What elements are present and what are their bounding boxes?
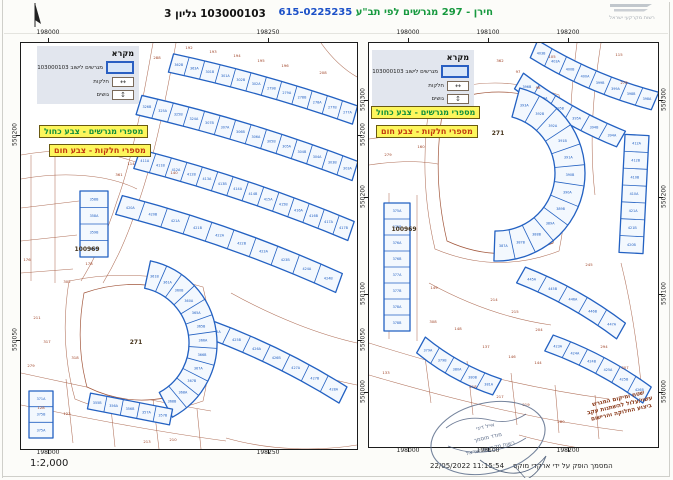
legend-note-parcels-brown: מספרי חלקות - צבע חום [376, 125, 478, 138]
svg-text:133: 133 [382, 370, 390, 375]
svg-text:390A: 390A [563, 191, 572, 195]
svg-text:391A: 391A [564, 156, 573, 160]
svg-text:392B: 392B [535, 112, 544, 116]
svg-text:413B: 413B [218, 182, 227, 186]
svg-text:416B: 416B [309, 214, 318, 218]
svg-text:403A: 403A [551, 60, 560, 64]
svg-text:421B: 421B [193, 226, 202, 230]
svg-text:305A: 305A [282, 145, 291, 149]
svg-text:303A: 303A [343, 166, 352, 170]
svg-text:306B: 306B [236, 130, 245, 134]
svg-text:421B: 421B [628, 226, 637, 230]
svg-text:389B: 389B [556, 207, 565, 211]
tick-mark [358, 340, 362, 341]
svg-text:376A: 376A [393, 241, 402, 245]
tick-mark [659, 100, 663, 101]
svg-text:302B: 302B [236, 78, 245, 82]
svg-text:375A: 375A [393, 209, 402, 213]
legend-box: מקרא מגרשים לישוב 103000103 ↔ חלקות ↕ גו… [372, 50, 474, 108]
tick-mark [16, 340, 20, 341]
svg-text:365B: 365B [197, 324, 206, 328]
svg-text:304B: 304B [297, 150, 306, 154]
svg-text:398B: 398B [627, 92, 636, 96]
svg-text:414A: 414A [233, 187, 242, 191]
svg-text:301B: 301B [205, 70, 214, 74]
svg-text:377B: 377B [393, 289, 402, 293]
svg-text:355B: 355B [93, 401, 102, 405]
sheet-label: 103000103 גליון 3 [160, 8, 270, 20]
legend-title: מקרא [377, 53, 469, 62]
svg-text:424A: 424A [302, 267, 311, 271]
svg-text:361A: 361A [163, 280, 172, 284]
tick-mark [568, 38, 569, 42]
svg-text:115: 115 [615, 52, 623, 57]
tick-mark [364, 197, 368, 198]
svg-text:176: 176 [23, 257, 31, 262]
legend-item-parcels: ↔ חלקות [42, 77, 134, 87]
svg-text:366A: 366A [199, 339, 208, 343]
svg-text:357B: 357B [158, 414, 167, 418]
svg-text:393A: 393A [520, 103, 529, 107]
svg-text:306A: 306A [251, 135, 260, 139]
svg-text:367B: 367B [187, 379, 196, 383]
surveyor-stamp: אייל דיני מודד מוסמך רשות מקרקעי ישראל [418, 352, 578, 478]
svg-text:362: 362 [496, 58, 504, 63]
svg-text:378B: 378B [393, 321, 402, 325]
svg-text:399B: 399B [596, 81, 605, 85]
svg-text:403B: 403B [537, 52, 546, 56]
svg-text:279B: 279B [267, 86, 276, 90]
stamp-line: מודד מוסמך [473, 432, 502, 444]
svg-text:413A: 413A [203, 177, 212, 181]
svg-text:388B: 388B [532, 233, 541, 237]
svg-text:422A: 422A [215, 234, 224, 238]
svg-text:411B: 411B [156, 163, 165, 167]
svg-text:128: 128 [37, 405, 45, 410]
svg-text:307A: 307A [221, 125, 230, 129]
svg-text:426B: 426B [272, 356, 281, 360]
svg-text:400B: 400B [566, 67, 575, 71]
svg-text:417B: 417B [339, 226, 348, 230]
svg-text:100969: 100969 [391, 226, 416, 233]
parcel-symbol: ↔ [447, 81, 469, 91]
svg-text:399A: 399A [611, 87, 620, 91]
svg-text:305B: 305B [267, 140, 276, 144]
authority-logo: רשות מקרקעי ישראל [600, 1, 664, 27]
svg-text:387B: 387B [516, 240, 525, 244]
tick-mark [48, 38, 49, 42]
svg-text:412B: 412B [631, 158, 640, 162]
svg-text:193: 193 [209, 49, 217, 54]
svg-text:318: 318 [71, 355, 79, 360]
legend-note-lots-blue: מספרי מגרשים - צבע כחול [39, 125, 148, 138]
legend-item-blocks: ↕ גושים [377, 94, 469, 104]
legend-note-lots-blue: מספרי מגרשים - צבע כחול [371, 106, 480, 119]
svg-text:358A: 358A [90, 214, 99, 218]
svg-text:446B: 446B [588, 309, 597, 313]
svg-text:97: 97 [516, 69, 521, 74]
svg-text:302: 302 [63, 279, 71, 284]
svg-text:326B: 326B [142, 105, 151, 109]
svg-text:447A: 447A [607, 322, 616, 326]
svg-text:325A: 325A [158, 109, 167, 113]
svg-text:271: 271 [492, 130, 505, 137]
scale-label: 1:2,000 [30, 458, 68, 469]
tick-mark [408, 448, 409, 452]
parcel-symbol: ↔ [112, 77, 134, 87]
svg-text:214: 214 [490, 297, 498, 302]
svg-text:426A: 426A [252, 347, 261, 351]
svg-text:360A: 360A [184, 299, 193, 303]
svg-text:417A: 417A [324, 220, 333, 224]
svg-text:194: 194 [233, 53, 241, 58]
svg-text:288: 288 [153, 55, 161, 60]
svg-text:324A: 324A [189, 117, 198, 121]
svg-text:279: 279 [27, 363, 35, 368]
svg-text:277A: 277A [343, 111, 352, 115]
tick-mark [488, 38, 489, 42]
legend-item-lots: מגרשים לישוב 103000103 [42, 61, 134, 74]
svg-text:423B: 423B [281, 258, 290, 262]
svg-text:208: 208 [319, 70, 327, 75]
svg-text:362B: 362B [174, 63, 183, 67]
lot-symbol [441, 65, 469, 78]
legend-item-lots: מגרשים לישוב 103000103 [377, 65, 469, 78]
svg-text:123: 123 [63, 411, 71, 416]
stamp-line: אייל דיני [476, 421, 496, 432]
svg-text:375A: 375A [37, 428, 46, 432]
svg-text:213: 213 [143, 439, 151, 444]
svg-text:325B: 325B [174, 113, 183, 117]
svg-text:317: 317 [43, 339, 51, 344]
page-edge [2, 0, 3, 478]
svg-text:195: 195 [257, 58, 265, 63]
svg-text:427A: 427A [291, 366, 300, 370]
svg-text:100969: 100969 [74, 246, 99, 253]
svg-text:149: 149 [430, 285, 438, 290]
svg-text:392A: 392A [548, 124, 557, 128]
svg-text:410A: 410A [630, 192, 639, 196]
svg-text:371A: 371A [37, 397, 46, 401]
svg-text:278: 278 [620, 80, 628, 85]
map-sheet: 103000103 גליון 3 חירן - 297 מגרשים לפי … [0, 0, 673, 480]
svg-text:294: 294 [600, 344, 608, 349]
coord-tick: 198000 [30, 29, 66, 36]
svg-text:363A: 363A [190, 66, 199, 70]
svg-text:427B: 427B [310, 376, 319, 380]
svg-text:445B: 445B [548, 287, 557, 291]
svg-text:415A: 415A [264, 197, 273, 201]
svg-text:271: 271 [130, 339, 143, 346]
svg-text:378A: 378A [393, 305, 402, 309]
svg-text:415B: 415B [279, 203, 288, 207]
svg-text:376B: 376B [393, 257, 402, 261]
svg-text:302A: 302A [252, 82, 261, 86]
svg-text:359B: 359B [90, 230, 99, 234]
svg-text:140: 140 [170, 170, 178, 175]
svg-text:357A: 357A [142, 410, 151, 414]
svg-text:105: 105 [548, 54, 556, 59]
svg-text:368A: 368A [179, 390, 188, 394]
svg-text:425B: 425B [619, 378, 628, 382]
svg-text:114: 114 [127, 161, 135, 166]
svg-text:420B: 420B [148, 212, 157, 216]
svg-text:365A: 365A [192, 311, 201, 315]
svg-text:178: 178 [85, 261, 93, 266]
svg-text:424B: 424B [324, 276, 333, 280]
svg-text:304A: 304A [313, 155, 322, 159]
svg-text:411A: 411A [140, 159, 149, 163]
svg-text:387A: 387A [499, 244, 508, 248]
svg-text:196: 196 [281, 63, 289, 68]
svg-text:367A: 367A [194, 366, 203, 370]
svg-text:425B: 425B [232, 338, 241, 342]
svg-text:420A: 420A [126, 206, 135, 210]
svg-text:356A: 356A [109, 404, 118, 408]
svg-text:303B: 303B [328, 161, 337, 165]
svg-text:396B: 396B [522, 85, 531, 89]
svg-text:210: 210 [169, 437, 177, 442]
svg-text:414B: 414B [249, 192, 258, 196]
svg-text:96: 96 [536, 85, 541, 90]
svg-text:412A: 412A [632, 142, 641, 146]
tick-mark [659, 197, 663, 198]
tick-mark [364, 100, 368, 101]
svg-text:160: 160 [417, 144, 425, 149]
legend-box: מקרא מגרשים לישוב 103000103 ↔ חלקות ↕ גו… [37, 46, 139, 104]
svg-text:278B: 278B [298, 96, 307, 100]
tick-mark [408, 38, 409, 42]
legend-item-parcels: ↔ חלקות [377, 81, 469, 91]
plan-name: חירן - 297 מגרשים לפי תב"ע [356, 7, 493, 18]
page-title: חירן - 297 מגרשים לפי תב"ע 615-0225235 [298, 7, 493, 18]
svg-text:394B: 394B [590, 125, 599, 129]
svg-text:368B: 368B [168, 399, 177, 403]
tick-mark [268, 450, 269, 454]
tick-mark [358, 135, 362, 136]
tick-mark [659, 294, 663, 295]
coord-tick: 198200 [550, 29, 586, 36]
north-arrow-icon [26, 0, 46, 30]
coord-tick: 198000 [390, 29, 426, 36]
svg-text:307: 307 [621, 365, 629, 370]
svg-text:425A: 425A [604, 368, 613, 372]
svg-text:428A: 428A [329, 387, 338, 391]
svg-text:361: 361 [115, 172, 123, 177]
tick-mark [16, 135, 20, 136]
svg-text:215: 215 [511, 309, 519, 314]
tick-mark [268, 38, 269, 42]
svg-text:360B: 360B [175, 289, 184, 293]
coord-tick: 198250 [250, 29, 286, 36]
svg-text:391B: 391B [558, 139, 567, 143]
legend-title: מקרא [42, 49, 134, 58]
svg-text:410B: 410B [630, 175, 639, 179]
svg-text:445A: 445A [527, 278, 536, 282]
svg-text:398A: 398A [643, 97, 652, 101]
svg-text:279: 279 [384, 152, 392, 157]
svg-text:424B: 424B [587, 359, 596, 363]
svg-text:361B: 361B [150, 275, 159, 279]
svg-text:245: 245 [585, 262, 593, 267]
svg-text:423A: 423A [259, 250, 268, 254]
svg-text:277B: 277B [328, 105, 337, 109]
map-panel-left: 362B363A301B301A302B302A279B279A278B278A… [20, 42, 358, 450]
svg-text:400A: 400A [581, 74, 590, 78]
svg-text:278A: 278A [313, 100, 322, 104]
svg-text:307B: 307B [205, 121, 214, 125]
tick-mark [48, 450, 49, 454]
svg-text:421A: 421A [171, 219, 180, 223]
svg-text:390B: 390B [566, 173, 575, 177]
legend-note-parcels-brown: מספרי חלקות - צבע חום [49, 144, 151, 157]
lot-symbol [106, 61, 134, 74]
svg-text:395A: 395A [572, 116, 581, 120]
svg-text:308: 308 [429, 319, 437, 324]
svg-text:211: 211 [33, 315, 41, 320]
svg-text:356B: 356B [126, 407, 135, 411]
tick-mark [364, 294, 368, 295]
coord-tick: 198100 [470, 29, 506, 36]
svg-text:423A: 423A [553, 344, 562, 348]
svg-text:148: 148 [454, 326, 462, 331]
block-symbol: ↕ [112, 90, 134, 100]
svg-text:רשות מקרקעי ישראל: רשות מקרקעי ישראל [609, 15, 655, 21]
svg-text:422B: 422B [237, 241, 246, 245]
svg-text:420B: 420B [627, 243, 636, 247]
svg-text:358B: 358B [90, 197, 99, 201]
tick-mark [364, 392, 368, 393]
plan-number: 615-0225235 [278, 7, 352, 18]
svg-text:377A: 377A [393, 273, 402, 277]
block-symbol: ↕ [447, 94, 469, 104]
svg-text:137: 137 [482, 344, 490, 349]
svg-text:279A: 279A [282, 91, 291, 95]
legend-item-blocks: ↕ גושים [42, 90, 134, 100]
stamp-line: רשות מקרקעי ישראל [465, 439, 515, 457]
svg-text:412B: 412B [187, 172, 196, 176]
svg-text:416A: 416A [294, 208, 303, 212]
svg-text:375B: 375B [37, 413, 46, 417]
svg-text:192: 192 [185, 45, 193, 50]
svg-text:446A: 446A [569, 298, 578, 302]
svg-text:394A: 394A [607, 133, 616, 137]
svg-text:421A: 421A [629, 209, 638, 213]
svg-text:301A: 301A [221, 74, 230, 78]
svg-text:204: 204 [535, 327, 543, 332]
svg-text:389A: 389A [546, 221, 555, 225]
svg-text:366B: 366B [198, 353, 207, 357]
